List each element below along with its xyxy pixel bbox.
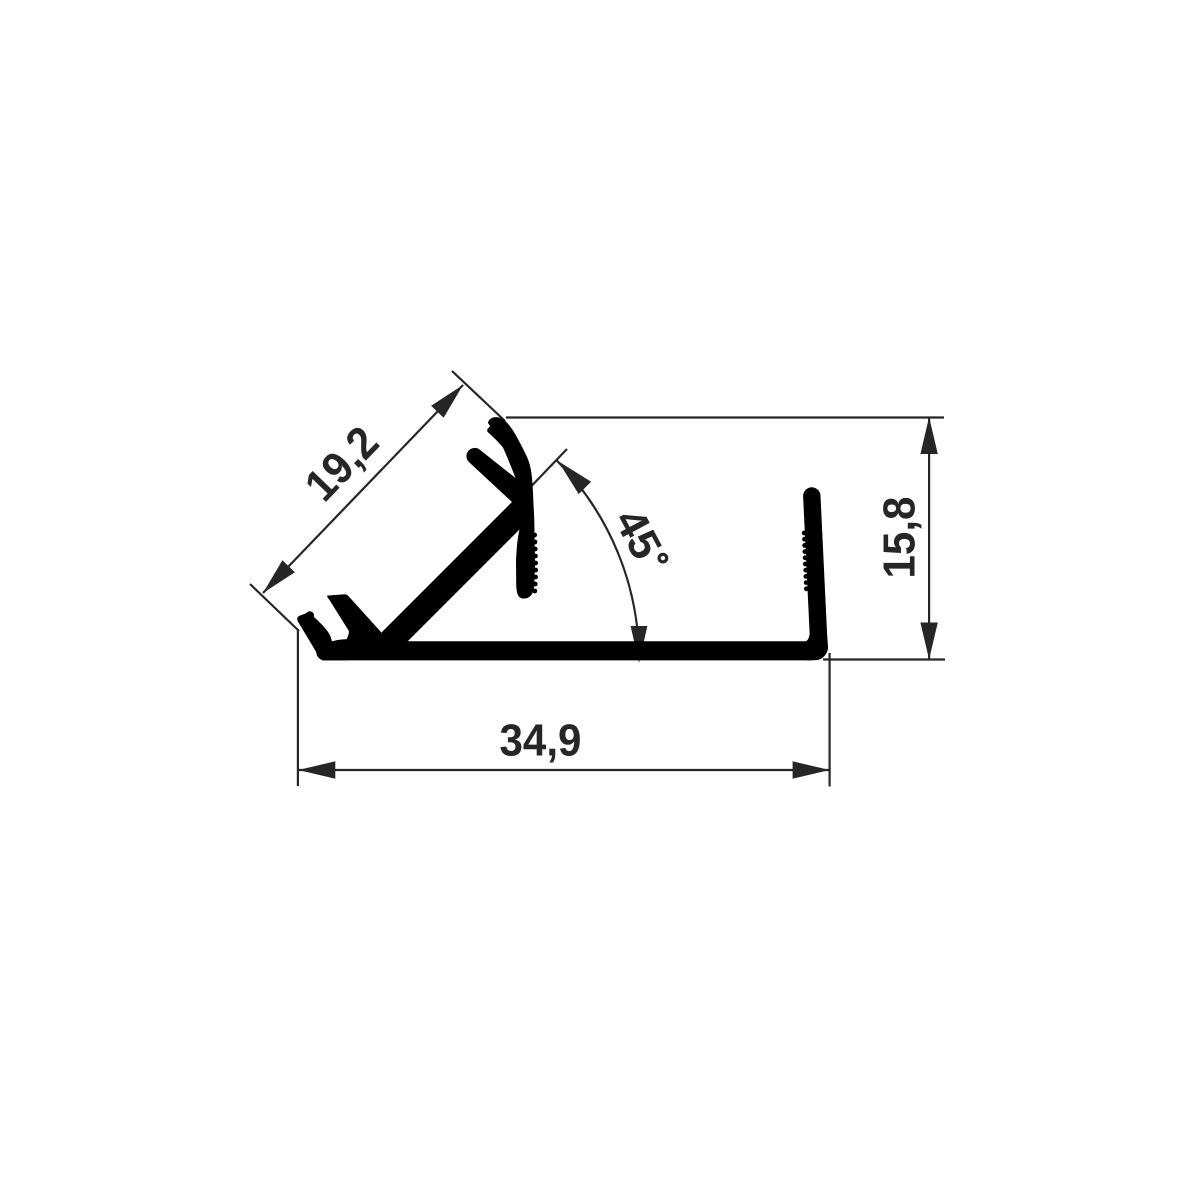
svg-text:34,9: 34,9 [500,715,582,766]
svg-text:45: 45 [605,501,671,567]
svg-text:15,8: 15,8 [874,497,925,579]
svg-text:19,2: 19,2 [295,416,389,510]
